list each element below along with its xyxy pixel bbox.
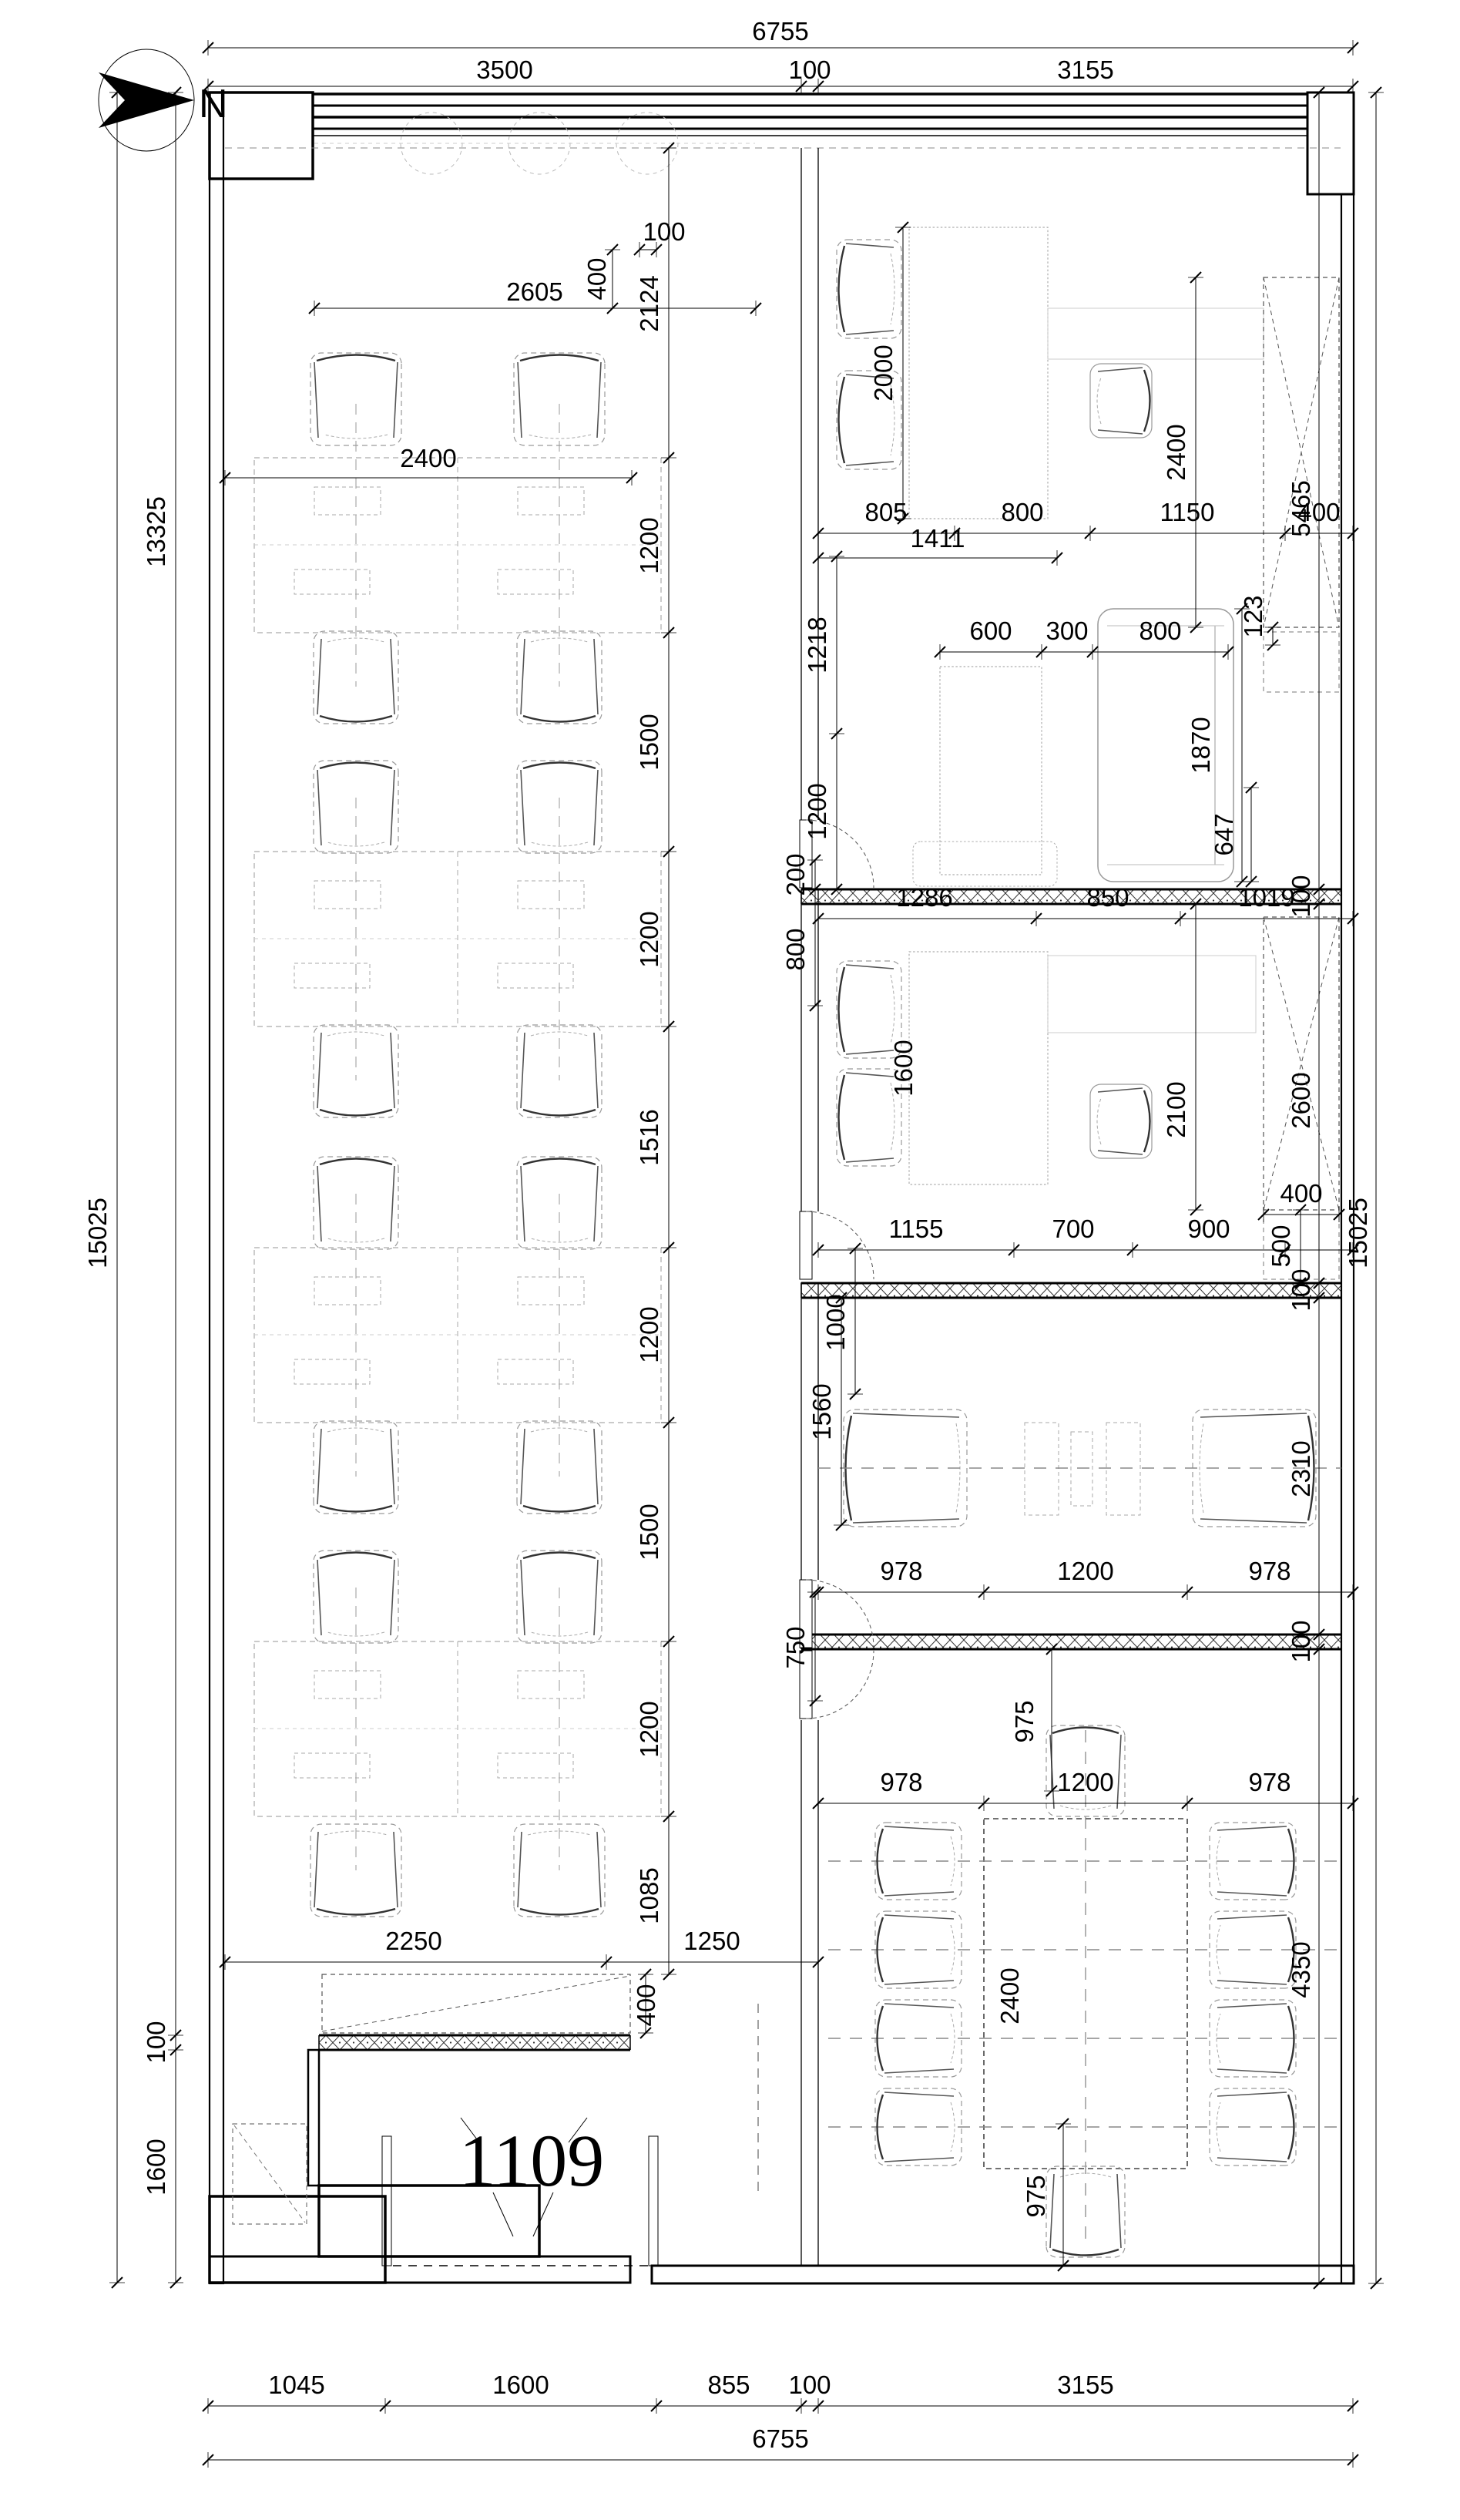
dim-label: 100 — [1287, 1268, 1315, 1311]
dim-label: 1155 — [889, 1215, 944, 1243]
dim-label: 855 — [707, 2370, 750, 2399]
dim-label: 978 — [1248, 1557, 1291, 1585]
dim-label: 15025 — [1344, 1198, 1372, 1268]
dim-label: 800 — [1001, 498, 1043, 526]
dim-label: 1019 — [1238, 883, 1294, 912]
dim-label: 800 — [1139, 617, 1181, 645]
dim-label: 1218 — [803, 617, 831, 673]
dim-label: 1200 — [635, 911, 663, 967]
dim-label: 978 — [880, 1557, 922, 1585]
dim-label: 1600 — [492, 2370, 549, 2399]
dim-label: 1411 — [911, 524, 965, 553]
dim-label: 1500 — [635, 1504, 663, 1560]
dim-label: 2400 — [400, 444, 456, 472]
floor-plan-page: 6755350010031551004002605150251332510016… — [0, 0, 1460, 2516]
dim-label: 1200 — [635, 1306, 663, 1362]
dim-label: 2250 — [385, 1927, 441, 1955]
dim-label: 900 — [1187, 1215, 1230, 1243]
dimension-lines — [109, 40, 1384, 2468]
dim-label: 2100 — [1162, 1081, 1190, 1137]
dim-label: 15025 — [83, 1198, 112, 1268]
dim-label: 2400 — [995, 1967, 1024, 2024]
dim-label: 1200 — [803, 783, 831, 839]
dim-label: 600 — [969, 617, 1012, 645]
dim-label: 805 — [864, 498, 907, 526]
dimension-annotations: 6755350010031551004002605150251332510016… — [83, 17, 1372, 2453]
dim-label: 750 — [781, 1626, 810, 1668]
dim-label: 1500 — [635, 714, 663, 770]
dim-label: 978 — [1248, 1768, 1291, 1796]
dim-label: 3155 — [1057, 55, 1113, 84]
chair-icon — [837, 240, 901, 338]
dim-label: 1250 — [683, 1927, 740, 1955]
dim-label: 123 — [1239, 595, 1267, 637]
dim-label: 1150 — [1160, 498, 1215, 526]
chair-icon — [1090, 1084, 1152, 1158]
dim-label: 100 — [788, 55, 831, 84]
dim-label: 700 — [1052, 1215, 1094, 1243]
dim-label: 975 — [1022, 2175, 1050, 2217]
room-number-label: 1109 — [459, 2119, 604, 2202]
dim-label: 1516 — [635, 1109, 663, 1165]
dim-label: 1000 — [821, 1294, 850, 1350]
dim-label: 400 — [582, 257, 611, 300]
dim-label: 3155 — [1057, 2370, 1113, 2399]
dim-label: 1200 — [635, 517, 663, 573]
dim-label: 2310 — [1287, 1440, 1315, 1497]
dim-label: 800 — [781, 928, 810, 970]
dim-label: 4350 — [1287, 1941, 1315, 1998]
dim-label: 2400 — [1162, 424, 1190, 480]
dim-label: 1200 — [1057, 1557, 1113, 1585]
dim-label: 1200 — [635, 1701, 663, 1757]
dim-label: 400 — [1280, 1179, 1322, 1208]
dim-label: 100 — [788, 2370, 831, 2399]
dim-label: 1045 — [268, 2370, 324, 2399]
dim-label: 100 — [643, 217, 685, 246]
walls — [210, 92, 1354, 2283]
dim-label: 100 — [142, 2021, 170, 2063]
dim-label: 975 — [1010, 1700, 1039, 1742]
dim-label: 2124 — [635, 275, 663, 331]
floor-plan-canvas: 6755350010031551004002605150251332510016… — [0, 0, 1460, 2516]
dim-label: 1600 — [889, 1040, 918, 1096]
dim-label: 500 — [1267, 1225, 1295, 1267]
dim-label: 400 — [1297, 498, 1340, 526]
dim-label: 3500 — [476, 55, 532, 84]
dim-label: 6755 — [752, 2424, 808, 2453]
dim-label: 2000 — [869, 344, 898, 401]
dim-label: 1560 — [807, 1383, 836, 1440]
dim-label: 647 — [1210, 813, 1238, 855]
north-label: N — [199, 82, 228, 126]
dim-label: 1200 — [1057, 1768, 1113, 1796]
dim-label: 400 — [632, 1984, 660, 2026]
dim-label: 1600 — [142, 2139, 170, 2195]
dim-label: 300 — [1045, 617, 1088, 645]
dim-label: 850 — [1086, 883, 1129, 912]
dim-label: 6755 — [752, 17, 808, 45]
dim-label: 1870 — [1186, 717, 1215, 773]
dim-label: 200 — [781, 853, 810, 895]
dim-label: 100 — [1287, 1620, 1315, 1662]
dim-label: 2600 — [1287, 1072, 1315, 1128]
dim-label: 13325 — [142, 496, 170, 567]
dim-label: 978 — [880, 1768, 922, 1796]
dim-label: 2605 — [506, 277, 562, 306]
dim-label: 1085 — [635, 1867, 663, 1924]
chair-icon — [1090, 364, 1152, 438]
dim-label: 1286 — [896, 883, 952, 912]
